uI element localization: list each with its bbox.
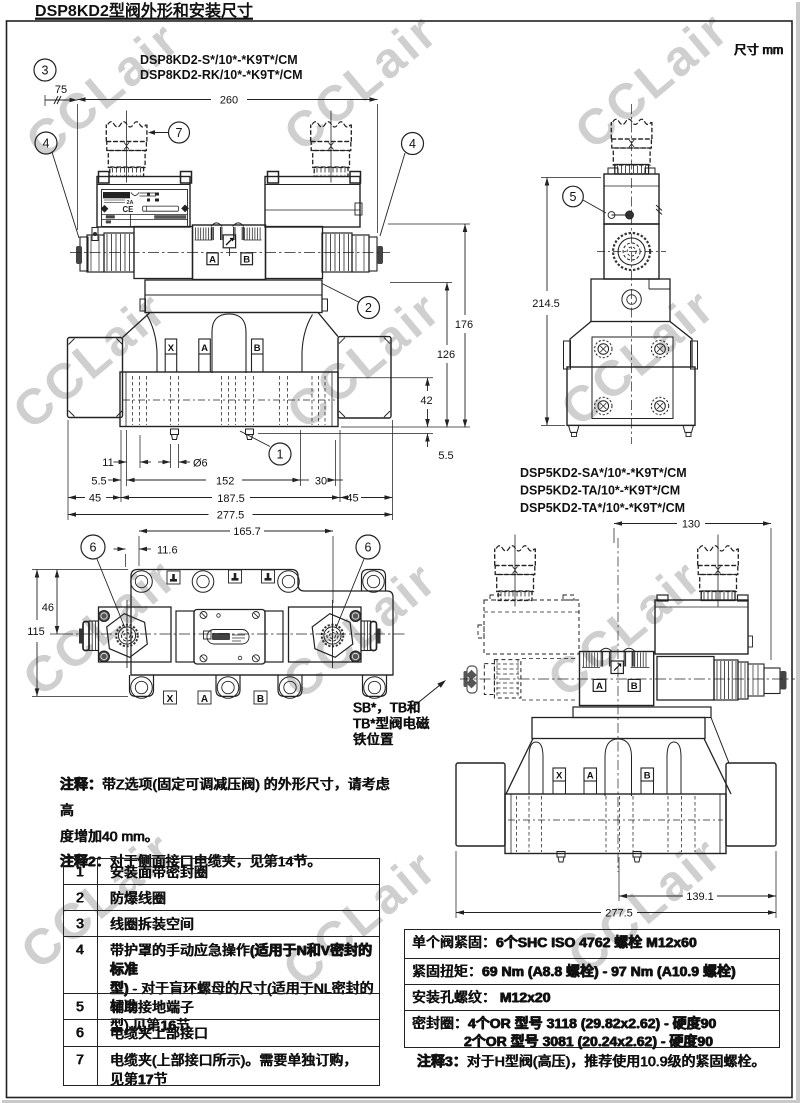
svg-text:DSP5KD2-TA/10*-*K9T*/CM: DSP5KD2-TA/10*-*K9T*/CM <box>520 484 680 498</box>
svg-text:5: 5 <box>570 190 577 204</box>
svg-text:Ø6: Ø6 <box>193 458 208 470</box>
svg-text:DSP5KD2-TA*/10*-*K9T*/CM: DSP5KD2-TA*/10*-*K9T*/CM <box>520 501 685 515</box>
svg-text:A: A <box>209 254 216 265</box>
svg-text:5.5: 5.5 <box>438 450 453 462</box>
svg-text:B: B <box>243 254 250 265</box>
svg-text:46: 46 <box>42 602 54 614</box>
svg-text:DSP8KD2-RK/10*-*K9T*/CM: DSP8KD2-RK/10*-*K9T*/CM <box>140 68 303 82</box>
svg-text:DSP8KD2型阀外形和安装尺寸: DSP8KD2型阀外形和安装尺寸 <box>35 1 253 20</box>
svg-text:A: A <box>201 343 208 354</box>
svg-text:115: 115 <box>27 626 45 638</box>
svg-text:165.7: 165.7 <box>233 526 261 538</box>
svg-text:A: A <box>596 681 603 692</box>
svg-text:X: X <box>167 694 174 705</box>
svg-text:A: A <box>587 771 594 782</box>
svg-text:DSP8KD2-S*/10*-*K9T*/CM: DSP8KD2-S*/10*-*K9T*/CM <box>140 53 298 67</box>
svg-text:277.5: 277.5 <box>605 908 633 920</box>
svg-text:30: 30 <box>315 476 327 488</box>
svg-text:7: 7 <box>176 126 183 140</box>
svg-text:CCLair: CCLair <box>272 550 447 710</box>
svg-text:CCLair: CCLair <box>276 280 451 440</box>
svg-text:CE: CE <box>123 205 134 214</box>
svg-text:139.1: 139.1 <box>686 891 714 903</box>
svg-text:CCLair: CCLair <box>2 280 177 440</box>
svg-text:6: 6 <box>90 541 97 555</box>
svg-text:A: A <box>201 694 208 705</box>
svg-text:DSP5KD2-SA*/10*-*K9T*/CM: DSP5KD2-SA*/10*-*K9T*/CM <box>520 466 687 480</box>
svg-text:45: 45 <box>346 493 358 505</box>
svg-text:X: X <box>556 771 563 782</box>
svg-text:X: X <box>168 343 175 354</box>
svg-text:11: 11 <box>102 457 113 469</box>
svg-text:214.5: 214.5 <box>532 298 560 310</box>
svg-text:B: B <box>257 694 264 705</box>
svg-text:5.5: 5.5 <box>91 476 106 488</box>
svg-text:176: 176 <box>455 319 473 331</box>
svg-text:6: 6 <box>365 541 372 555</box>
svg-text:45: 45 <box>89 493 101 505</box>
svg-text:126: 126 <box>437 349 455 361</box>
svg-text:42: 42 <box>420 395 432 407</box>
svg-text:1: 1 <box>277 448 284 462</box>
svg-text:11.6: 11.6 <box>157 545 178 557</box>
svg-text:277.5: 277.5 <box>217 510 245 522</box>
svg-text:CCLair: CCLair <box>537 548 712 708</box>
svg-text:3: 3 <box>42 64 49 78</box>
svg-text:CCLair: CCLair <box>550 277 725 437</box>
svg-text:187.5: 187.5 <box>217 493 245 505</box>
svg-text:B: B <box>644 771 651 782</box>
svg-text:B: B <box>631 681 638 692</box>
svg-text:260: 260 <box>220 95 238 107</box>
svg-text:B: B <box>254 343 261 354</box>
svg-text:4: 4 <box>43 137 50 151</box>
svg-text:2: 2 <box>365 301 372 315</box>
svg-text:4: 4 <box>409 137 416 151</box>
svg-text:75: 75 <box>55 84 67 96</box>
svg-text:130: 130 <box>682 519 700 531</box>
svg-text:152: 152 <box>216 476 234 488</box>
